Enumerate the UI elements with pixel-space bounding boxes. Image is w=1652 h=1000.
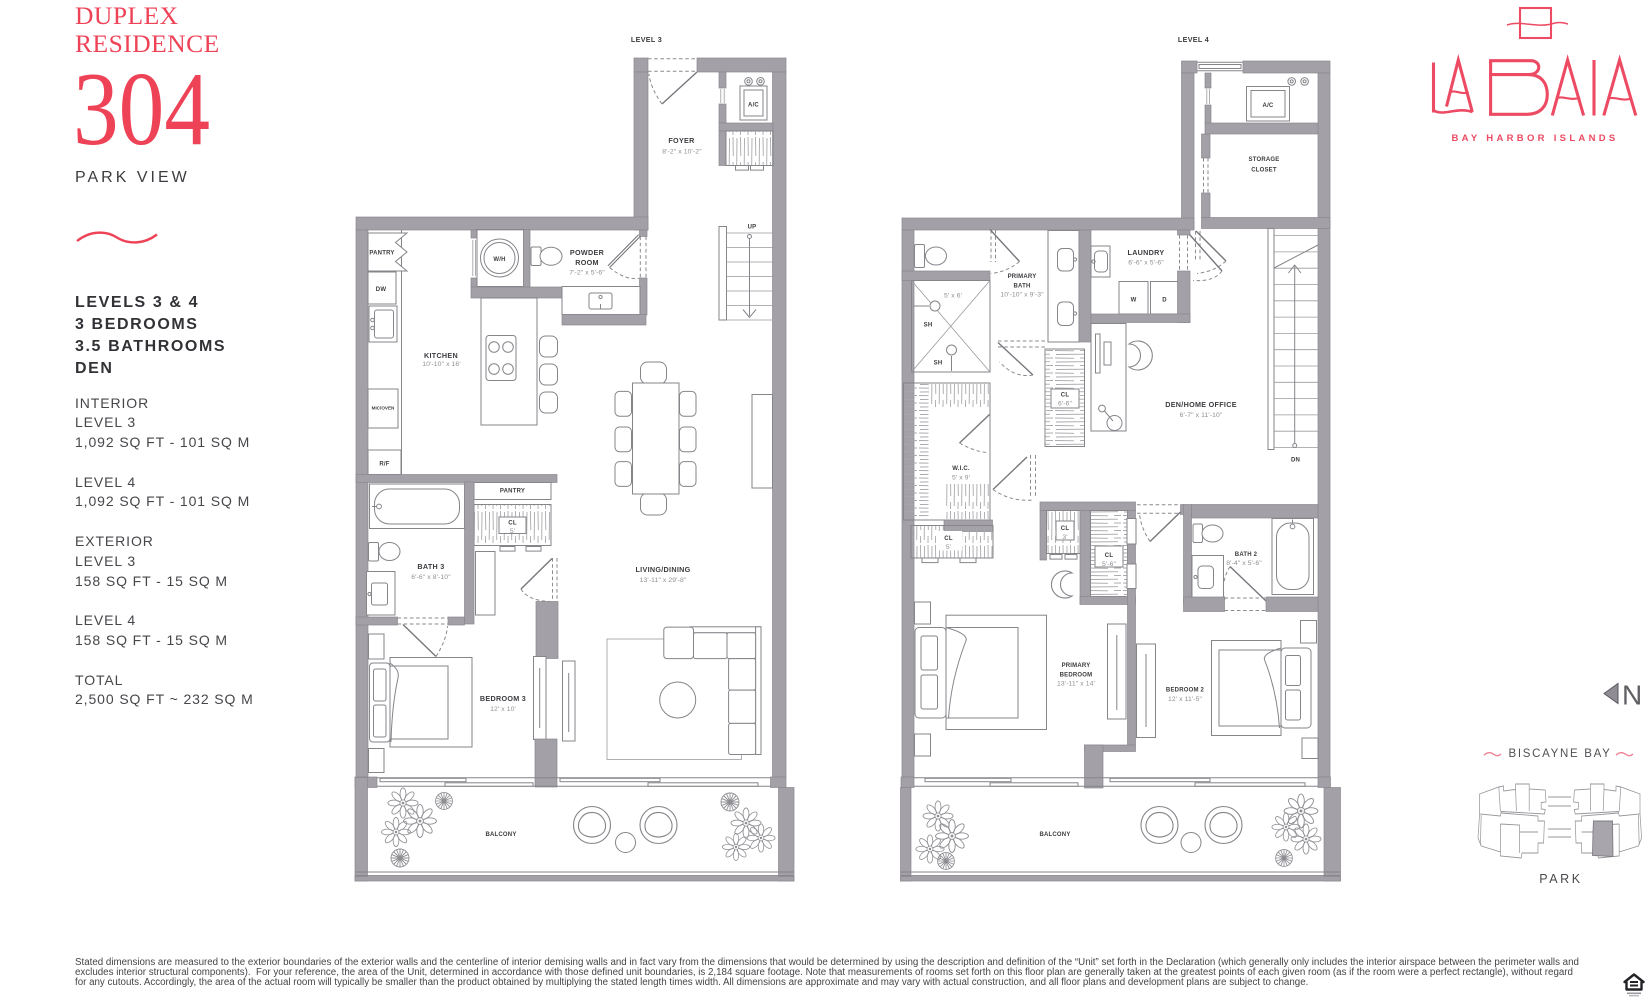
- svg-text:D: D: [1162, 298, 1167, 304]
- svg-text:5' x 6': 5' x 6': [944, 293, 962, 300]
- svg-text:8'-2" x 10'-2": 8'-2" x 10'-2": [662, 149, 702, 156]
- svg-text:13'-11" x 29'-8": 13'-11" x 29'-8": [640, 577, 687, 584]
- svg-text:BEDROOM 2: BEDROOM 2: [1166, 688, 1205, 694]
- svg-text:LIVING/DINING: LIVING/DINING: [635, 565, 690, 574]
- svg-text:BALCONY: BALCONY: [485, 832, 516, 838]
- svg-text:CL: CL: [1061, 393, 1070, 399]
- svg-text:5' x 9': 5' x 9': [952, 475, 970, 482]
- svg-text:CL: CL: [1061, 526, 1070, 532]
- svg-text:8'-4" x 5'-6": 8'-4" x 5'-6": [1226, 560, 1262, 567]
- svg-text:5': 5': [510, 528, 515, 535]
- svg-text:LAUNDRY: LAUNDRY: [1128, 248, 1165, 257]
- svg-text:PANTRY: PANTRY: [500, 489, 525, 495]
- svg-text:W: W: [1131, 298, 1137, 304]
- svg-text:12' x 11'-5": 12' x 11'-5": [1168, 696, 1203, 703]
- svg-text:PRIMARY: PRIMARY: [1062, 663, 1091, 669]
- svg-text:DEN/HOME OFFICE: DEN/HOME OFFICE: [1165, 400, 1237, 409]
- svg-text:A/C: A/C: [748, 103, 759, 109]
- svg-text:CL: CL: [1105, 553, 1114, 559]
- svg-text:LEVEL 3: LEVEL 3: [631, 35, 662, 44]
- svg-text:DW: DW: [376, 287, 387, 293]
- svg-text:BATH 2: BATH 2: [1235, 552, 1258, 558]
- svg-text:BATH: BATH: [1013, 284, 1030, 290]
- svg-text:BEDROOM: BEDROOM: [1060, 673, 1093, 679]
- svg-text:10'-10" x 16': 10'-10" x 16': [422, 361, 460, 368]
- svg-text:DN: DN: [1291, 458, 1300, 464]
- svg-text:SH: SH: [934, 361, 943, 367]
- svg-text:LEVEL 4: LEVEL 4: [1178, 35, 1209, 44]
- svg-text:BALCONY: BALCONY: [1039, 832, 1070, 838]
- svg-text:PRIMARY: PRIMARY: [1008, 274, 1037, 280]
- svg-text:PANTRY: PANTRY: [369, 251, 394, 257]
- svg-text:A/C: A/C: [1263, 103, 1274, 109]
- svg-text:CL: CL: [944, 536, 953, 542]
- svg-text:W.I.C.: W.I.C.: [952, 466, 970, 472]
- svg-text:W/H: W/H: [493, 257, 505, 263]
- svg-text:6'-6" x 8'-10": 6'-6" x 8'-10": [411, 574, 451, 581]
- svg-text:R/F: R/F: [379, 462, 389, 468]
- svg-text:12' x 10': 12' x 10': [490, 706, 516, 713]
- svg-text:SH: SH: [924, 323, 933, 329]
- svg-text:3': 3': [1062, 534, 1067, 541]
- svg-text:CLOSET: CLOSET: [1251, 168, 1277, 174]
- svg-text:13'-11" x 14': 13'-11" x 14': [1057, 681, 1095, 688]
- svg-text:STORAGE: STORAGE: [1249, 157, 1280, 163]
- svg-text:5': 5': [946, 544, 951, 551]
- svg-text:5'-6": 5'-6": [1102, 561, 1117, 568]
- svg-text:BEDROOM 3: BEDROOM 3: [480, 694, 526, 703]
- svg-text:10'-10" x 9'-3": 10'-10" x 9'-3": [1000, 292, 1044, 299]
- svg-text:CL: CL: [508, 521, 517, 527]
- svg-text:7'-2" x 5'-6": 7'-2" x 5'-6": [569, 270, 605, 277]
- svg-text:6'-6": 6'-6": [1058, 401, 1073, 408]
- svg-text:ROOM: ROOM: [575, 258, 599, 267]
- svg-text:UP: UP: [748, 225, 757, 231]
- svg-text:6'-7" x 11'-10": 6'-7" x 11'-10": [1180, 412, 1223, 419]
- svg-text:MIC/OVEN: MIC/OVEN: [372, 406, 395, 411]
- svg-text:POWDER: POWDER: [570, 248, 605, 257]
- svg-text:BATH 3: BATH 3: [417, 562, 444, 571]
- svg-text:FOYER: FOYER: [668, 136, 695, 145]
- svg-text:6'-6" x 5'-6": 6'-6" x 5'-6": [1128, 260, 1164, 267]
- svg-text:KITCHEN: KITCHEN: [424, 351, 458, 360]
